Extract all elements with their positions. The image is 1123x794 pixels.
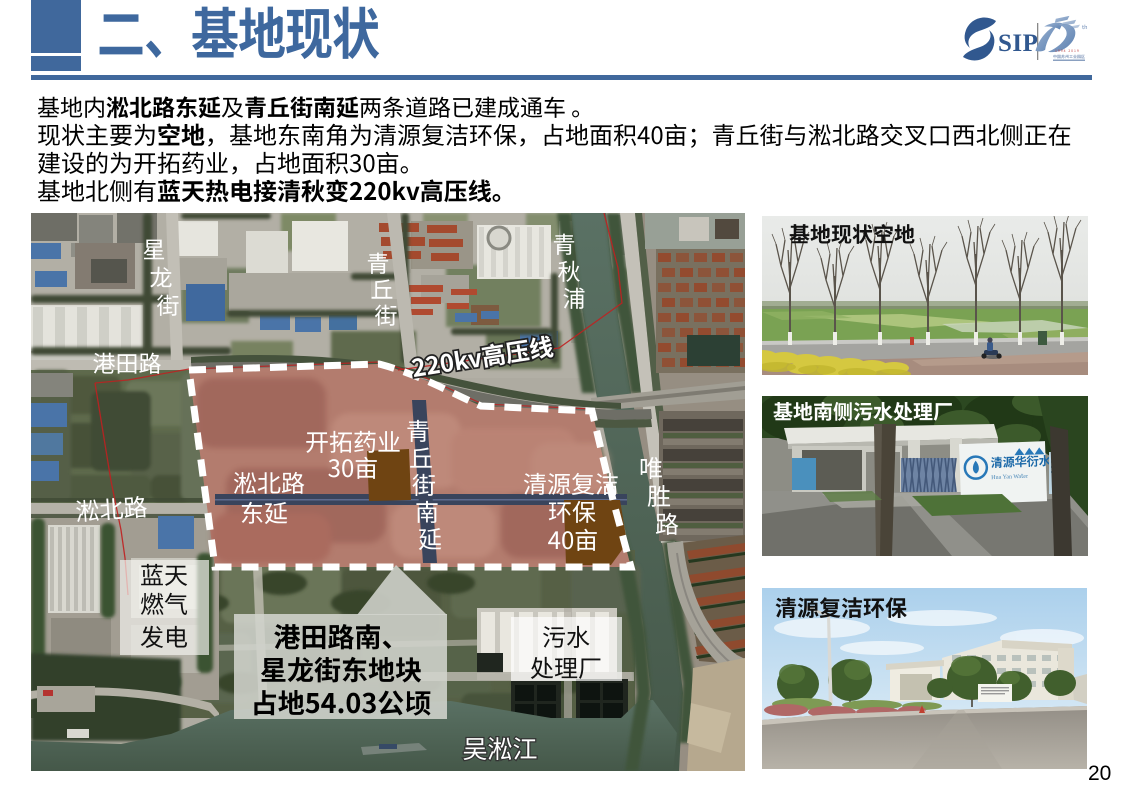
svg-text:路: 路 <box>655 505 679 540</box>
svg-text:燃气: 燃气 <box>140 585 188 620</box>
svg-text:1994 2019: 1994 2019 <box>1055 48 1080 53</box>
svg-text:发电: 发电 <box>140 618 188 653</box>
svg-text:浦: 浦 <box>563 280 586 314</box>
svg-text:吴淞江: 吴淞江 <box>462 730 537 766</box>
svg-text:基地现状空地: 基地现状空地 <box>789 219 915 249</box>
svg-text:清源复洁环保: 清源复洁环保 <box>775 591 907 623</box>
svg-text:th: th <box>1082 23 1087 31</box>
svg-text:基地南侧污水处理厂: 基地南侧污水处理厂 <box>773 396 953 425</box>
svg-text:延: 延 <box>418 520 442 555</box>
svg-text:污水: 污水 <box>542 618 590 653</box>
svg-text:SIP: SIP <box>998 30 1038 57</box>
svg-text:淞北路: 淞北路 <box>74 488 148 528</box>
svg-text:街: 街 <box>157 287 180 321</box>
svg-text:中国苏州工业园区: 中国苏州工业园区 <box>1053 54 1085 60</box>
svg-text:街: 街 <box>375 297 398 331</box>
svg-text:东延: 东延 <box>240 494 288 529</box>
svg-text:处理厂: 处理厂 <box>530 649 602 684</box>
svg-text:港田路: 港田路 <box>93 345 162 379</box>
svg-text:Hua Yan Water: Hua Yan Water <box>991 471 1028 481</box>
svg-text:占地54.03公顷: 占地54.03公顷 <box>251 682 432 721</box>
svg-text:30亩: 30亩 <box>328 449 379 484</box>
svg-text:40亩: 40亩 <box>548 521 599 556</box>
